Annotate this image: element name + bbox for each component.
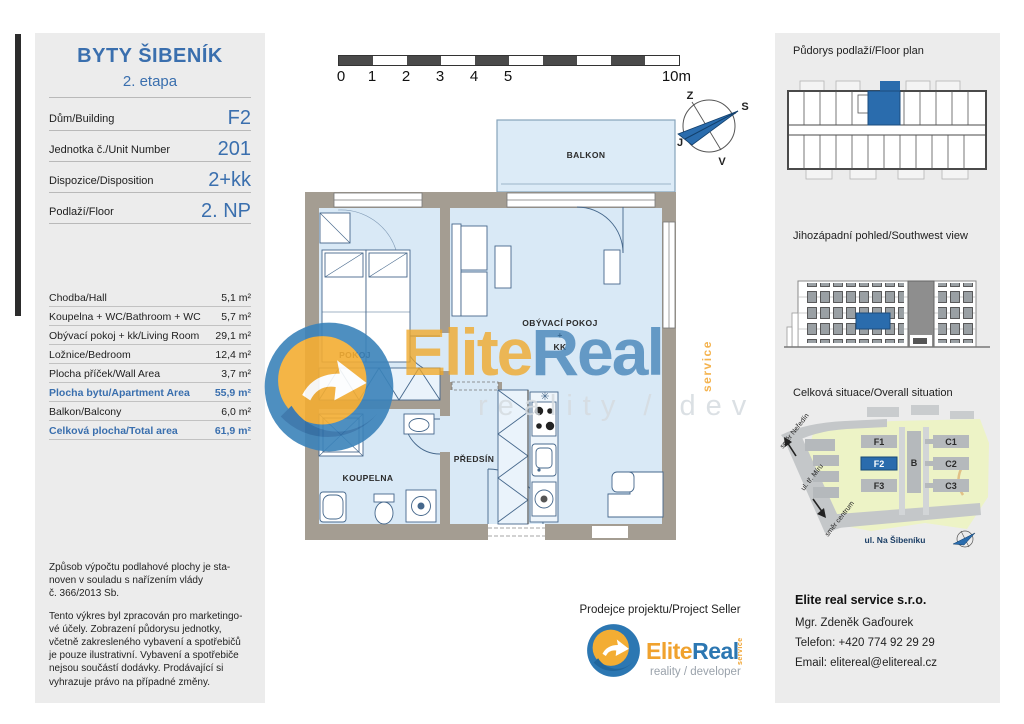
info-row-floor: Podlaží/Floor 2. NP — [49, 193, 251, 224]
seller-logo-icon — [586, 623, 641, 678]
block-label-c2: C2 — [945, 459, 957, 469]
seller-tagline: reality / developer — [650, 666, 741, 678]
kitchen-symbol: ✳ — [540, 391, 549, 403]
info-label: Podlaží/Floor — [49, 206, 114, 221]
block-label-b: B — [911, 458, 918, 468]
floorplan-section-heading: Půdorys podlaží/Floor plan — [793, 45, 924, 57]
scale-segment — [475, 56, 509, 65]
seller-brand-elite: Elite — [646, 638, 692, 664]
area-label: Ložnice/Bedroom — [49, 349, 131, 361]
unit-info-rows: Dům/Building F2 Jednotka č./Unit Number … — [49, 100, 251, 224]
legal-paragraph: Tento výkres byl zpracován pro marketing… — [49, 610, 251, 689]
area-value: 5,1 m² — [221, 292, 251, 304]
area-table: Chodba/Hall 5,1 m² Koupelna + WC/Bathroo… — [49, 288, 251, 440]
area-label: Celková plocha/Total area — [49, 425, 178, 437]
watermark-service-label: service — [700, 318, 714, 392]
room-label-balcony: BALKON — [567, 150, 606, 160]
info-label: Dispozice/Disposition — [49, 175, 154, 190]
contact-phone: Telefon: +420 774 92 29 29 — [795, 637, 937, 649]
situation-section-heading: Celková situace/Overall situation — [793, 387, 953, 399]
seller-brand-real: Real — [692, 638, 739, 664]
room-label-living-kk: KK — [553, 342, 567, 352]
room-label-bedroom: POKOJ — [339, 350, 371, 360]
building-floorplan-thumbnail — [780, 71, 995, 191]
room-label-bathroom: KOUPELNA — [343, 473, 394, 483]
area-label: Koupelna + WC/Bathroom + WC — [49, 311, 201, 323]
scale-bar: 0 1 2 3 4 5 10m — [338, 53, 679, 87]
scale-end-label: 10m — [662, 68, 691, 85]
page-edge-mark — [15, 34, 21, 316]
site-map: F1 F2 F3 B C1 C2 C3 ul. Na Šibeníku směr… — [775, 401, 993, 553]
scale-segment — [543, 56, 577, 65]
elevation-section-heading: Jihozápadní pohled/Southwest view — [793, 230, 968, 242]
floorplan-datasheet-page: BYTY ŠIBENÍK 2. etapa Dům/Building F2 Je… — [0, 0, 1024, 724]
info-row-building: Dům/Building F2 — [49, 100, 251, 131]
contact-email: Email: elitereal@elitereal.cz — [795, 657, 937, 669]
highlighted-unit — [868, 91, 900, 125]
area-value: 55,9 m² — [215, 387, 251, 399]
info-value: 2+kk — [208, 170, 251, 190]
info-label: Jednotka č./Unit Number — [49, 144, 170, 159]
area-label: Obývací pokoj + kk/Living Room — [49, 330, 199, 342]
area-label: Plocha bytu/Apartment Area — [49, 387, 190, 399]
elevation-view — [780, 257, 995, 357]
hall-wardrobe — [498, 390, 528, 524]
area-value: 5,7 m² — [221, 311, 251, 323]
scale-segment — [611, 56, 645, 65]
legal-disclaimer: Způsob výpočtu podlahové plochy je sta- … — [49, 561, 251, 698]
scale-bar-ruler — [338, 55, 680, 66]
block-label-c3: C3 — [945, 481, 957, 491]
unit-info-panel: BYTY ŠIBENÍK 2. etapa Dům/Building F2 Je… — [35, 33, 265, 703]
site-map-compass — [953, 531, 975, 547]
contact-person: Mgr. Zdeněk Gaďourek — [795, 617, 937, 629]
area-value: 3,7 m² — [221, 368, 251, 380]
scale-segment — [339, 56, 373, 65]
compass-north-letter: S — [741, 101, 748, 113]
info-value: F2 — [228, 108, 251, 128]
highlighted-unit-elevation — [856, 313, 890, 329]
highlighted-unit-balcony — [880, 81, 900, 91]
project-stage: 2. etapa — [49, 73, 251, 98]
room-label-living-plus: + — [557, 330, 562, 340]
contact-block: Elite real service s.r.o. Mgr. Zdeněk Ga… — [795, 593, 937, 677]
area-row-bedroom: Ložnice/Bedroom 12,4 m² — [49, 345, 251, 364]
area-label: Chodba/Hall — [49, 292, 107, 304]
area-row-apartment-total: Plocha bytu/Apartment Area 55,9 m² — [49, 383, 251, 402]
scale-tick: 2 — [402, 68, 410, 85]
scale-tick: 4 — [470, 68, 478, 85]
info-value: 201 — [218, 139, 251, 159]
seller-brand: EliteReal — [646, 638, 739, 665]
project-title: BYTY ŠIBENÍK — [49, 45, 251, 68]
block-label-c1: C1 — [945, 437, 957, 447]
compass-east-letter: V — [718, 156, 726, 168]
area-row-hall: Chodba/Hall 5,1 m² — [49, 288, 251, 307]
street-label: ul. Na Šibeníku — [865, 534, 926, 545]
scale-tick: 5 — [504, 68, 512, 85]
info-row-unit-number: Jednotka č./Unit Number 201 — [49, 131, 251, 162]
seller-service-label: service — [737, 639, 744, 665]
kitchen-fixtures: ✳ — [530, 391, 558, 522]
scale-tick: 1 — [368, 68, 376, 85]
legal-paragraph: Způsob výpočtu podlahové plochy je sta- … — [49, 561, 251, 601]
block-label-f3: F3 — [874, 481, 885, 491]
apartment-floor-plan: BALKON — [292, 100, 692, 560]
scale-tick: 3 — [436, 68, 444, 85]
area-label: Plocha příček/Wall Area — [49, 368, 160, 380]
area-row-grand-total: Celková plocha/Total area 61,9 m² — [49, 421, 251, 440]
area-row-bathroom: Koupelna + WC/Bathroom + WC 5,7 m² — [49, 307, 251, 326]
context-panel: Půdorys podlaží/Floor plan — [775, 33, 1000, 703]
info-value: 2. NP — [201, 201, 251, 221]
area-value: 61,9 m² — [215, 425, 251, 437]
area-value: 29,1 m² — [215, 330, 251, 342]
area-row-living: Obývací pokoj + kk/Living Room 29,1 m² — [49, 326, 251, 345]
wall-niche — [592, 526, 628, 538]
area-value: 6,0 m² — [221, 406, 251, 418]
area-row-balcony: Balkon/Balcony 6,0 m² — [49, 402, 251, 421]
info-label: Dům/Building — [49, 113, 114, 128]
area-row-walls: Plocha příček/Wall Area 3,7 m² — [49, 364, 251, 383]
scale-segment — [407, 56, 441, 65]
room-label-living: OBÝVACÍ POKOJ — [522, 317, 597, 328]
block-label-f2: F2 — [874, 459, 885, 469]
seller-heading: Prodejce projektu/Project Seller — [560, 604, 760, 616]
block-label-f1: F1 — [874, 437, 885, 447]
info-row-disposition: Dispozice/Disposition 2+kk — [49, 162, 251, 193]
area-label: Balkon/Balcony — [49, 406, 121, 418]
company-name: Elite real service s.r.o. — [795, 593, 937, 607]
scale-tick: 0 — [337, 68, 345, 85]
room-label-hall: PŘEDSÍN — [454, 453, 495, 464]
area-value: 12,4 m² — [215, 349, 251, 361]
